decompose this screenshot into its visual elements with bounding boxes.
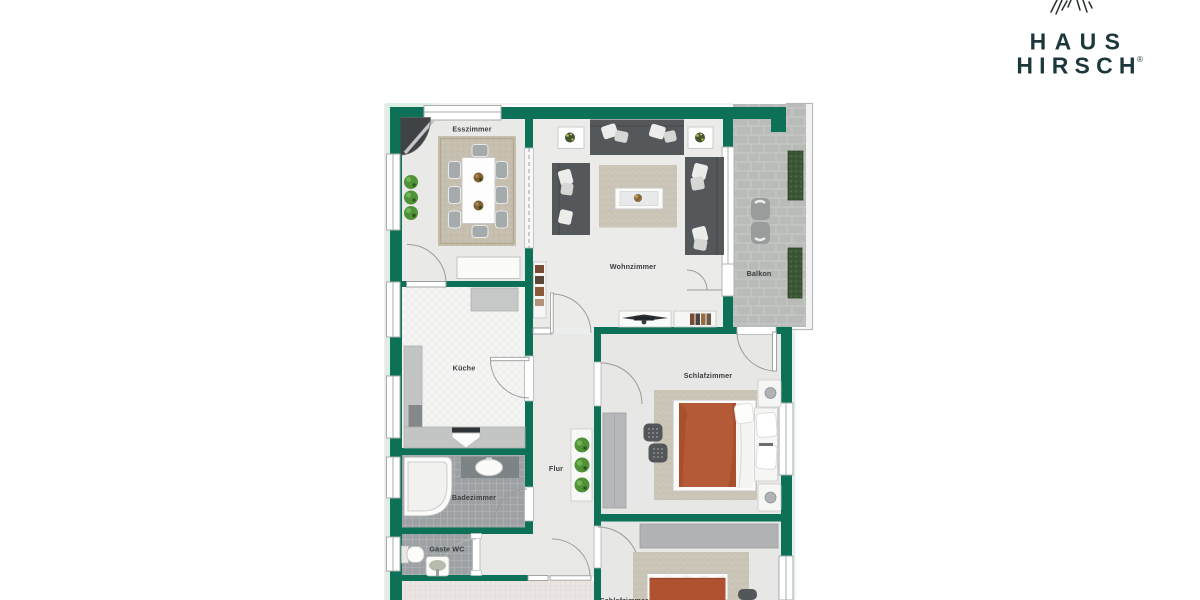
svg-text:Gäste WC: Gäste WC xyxy=(429,545,464,554)
svg-text:HAUS: HAUS xyxy=(1030,29,1129,55)
svg-text:Küche: Küche xyxy=(453,364,476,373)
svg-text:Wohnzimmer: Wohnzimmer xyxy=(610,262,657,271)
svg-text:®: ® xyxy=(1137,55,1143,64)
svg-text:Balkon: Balkon xyxy=(747,269,772,278)
svg-text:Esszimmer: Esszimmer xyxy=(452,125,491,134)
svg-text:Schlafzimmer: Schlafzimmer xyxy=(600,596,649,600)
svg-text:Flur: Flur xyxy=(549,464,563,473)
svg-text:Badezimmer: Badezimmer xyxy=(452,493,496,502)
svg-text:Schlafzimmer: Schlafzimmer xyxy=(684,371,733,380)
svg-text:HIRSCH: HIRSCH xyxy=(1016,53,1141,79)
